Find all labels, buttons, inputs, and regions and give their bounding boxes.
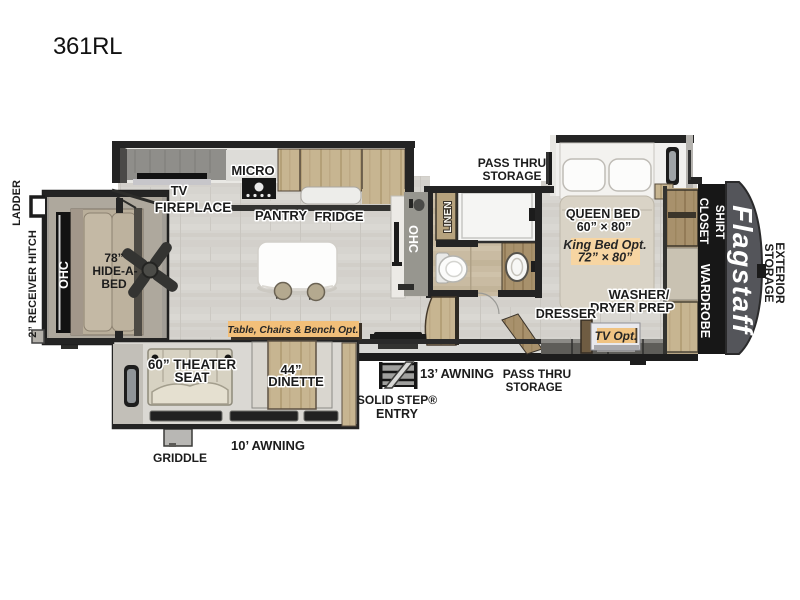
- svg-text:2” RECEIVER HITCH: 2” RECEIVER HITCH: [27, 230, 39, 338]
- svg-text:ENTRY: ENTRY: [376, 407, 419, 421]
- svg-text:HIDE-A-: HIDE-A-: [92, 264, 137, 278]
- svg-text:DINETTE: DINETTE: [268, 374, 324, 389]
- svg-text:STORAGE: STORAGE: [482, 169, 541, 183]
- svg-text:TV: TV: [171, 183, 188, 198]
- svg-text:Table, Chairs & Bench Opt.: Table, Chairs & Bench Opt.: [228, 325, 359, 336]
- svg-text:OHC: OHC: [406, 225, 420, 253]
- svg-text:WARDROBE: WARDROBE: [698, 264, 712, 338]
- svg-text:10’ AWNING: 10’ AWNING: [231, 438, 305, 453]
- svg-text:SOLID STEP®: SOLID STEP®: [357, 393, 437, 407]
- svg-text:SHIRT: SHIRT: [713, 205, 725, 240]
- svg-text:STORAGE: STORAGE: [506, 382, 563, 394]
- svg-text:DRYER PREP: DRYER PREP: [590, 300, 674, 315]
- svg-text:60” × 80”: 60” × 80”: [577, 220, 632, 234]
- svg-text:78”: 78”: [104, 251, 123, 265]
- svg-text:DRESSER: DRESSER: [536, 307, 596, 321]
- svg-text:LADDER: LADDER: [11, 180, 23, 226]
- svg-text:STORAGE: STORAGE: [762, 243, 776, 302]
- svg-text:GRIDDLE: GRIDDLE: [153, 451, 207, 465]
- svg-text:Flagstaff: Flagstaff: [727, 205, 758, 336]
- svg-text:FRIDGE: FRIDGE: [314, 209, 363, 224]
- svg-text:QUEEN BED: QUEEN BED: [566, 207, 640, 221]
- svg-text:PANTRY: PANTRY: [255, 208, 307, 223]
- svg-text:BED: BED: [101, 277, 127, 291]
- svg-text:MICRO: MICRO: [231, 163, 274, 178]
- svg-text:TV Opt.: TV Opt.: [595, 329, 638, 343]
- svg-text:FIREPLACE: FIREPLACE: [155, 200, 232, 215]
- svg-text:13’ AWNING: 13’ AWNING: [420, 366, 494, 381]
- svg-text:361RL: 361RL: [53, 33, 122, 60]
- svg-text:72” × 80”: 72” × 80”: [578, 251, 633, 265]
- svg-text:CLOSET: CLOSET: [697, 198, 709, 245]
- svg-text:PASS THRU: PASS THRU: [478, 156, 546, 170]
- svg-text:OHC: OHC: [57, 261, 71, 289]
- svg-text:LINEN: LINEN: [442, 201, 454, 233]
- svg-text:PASS THRU: PASS THRU: [503, 367, 571, 381]
- svg-text:SEAT: SEAT: [174, 370, 210, 385]
